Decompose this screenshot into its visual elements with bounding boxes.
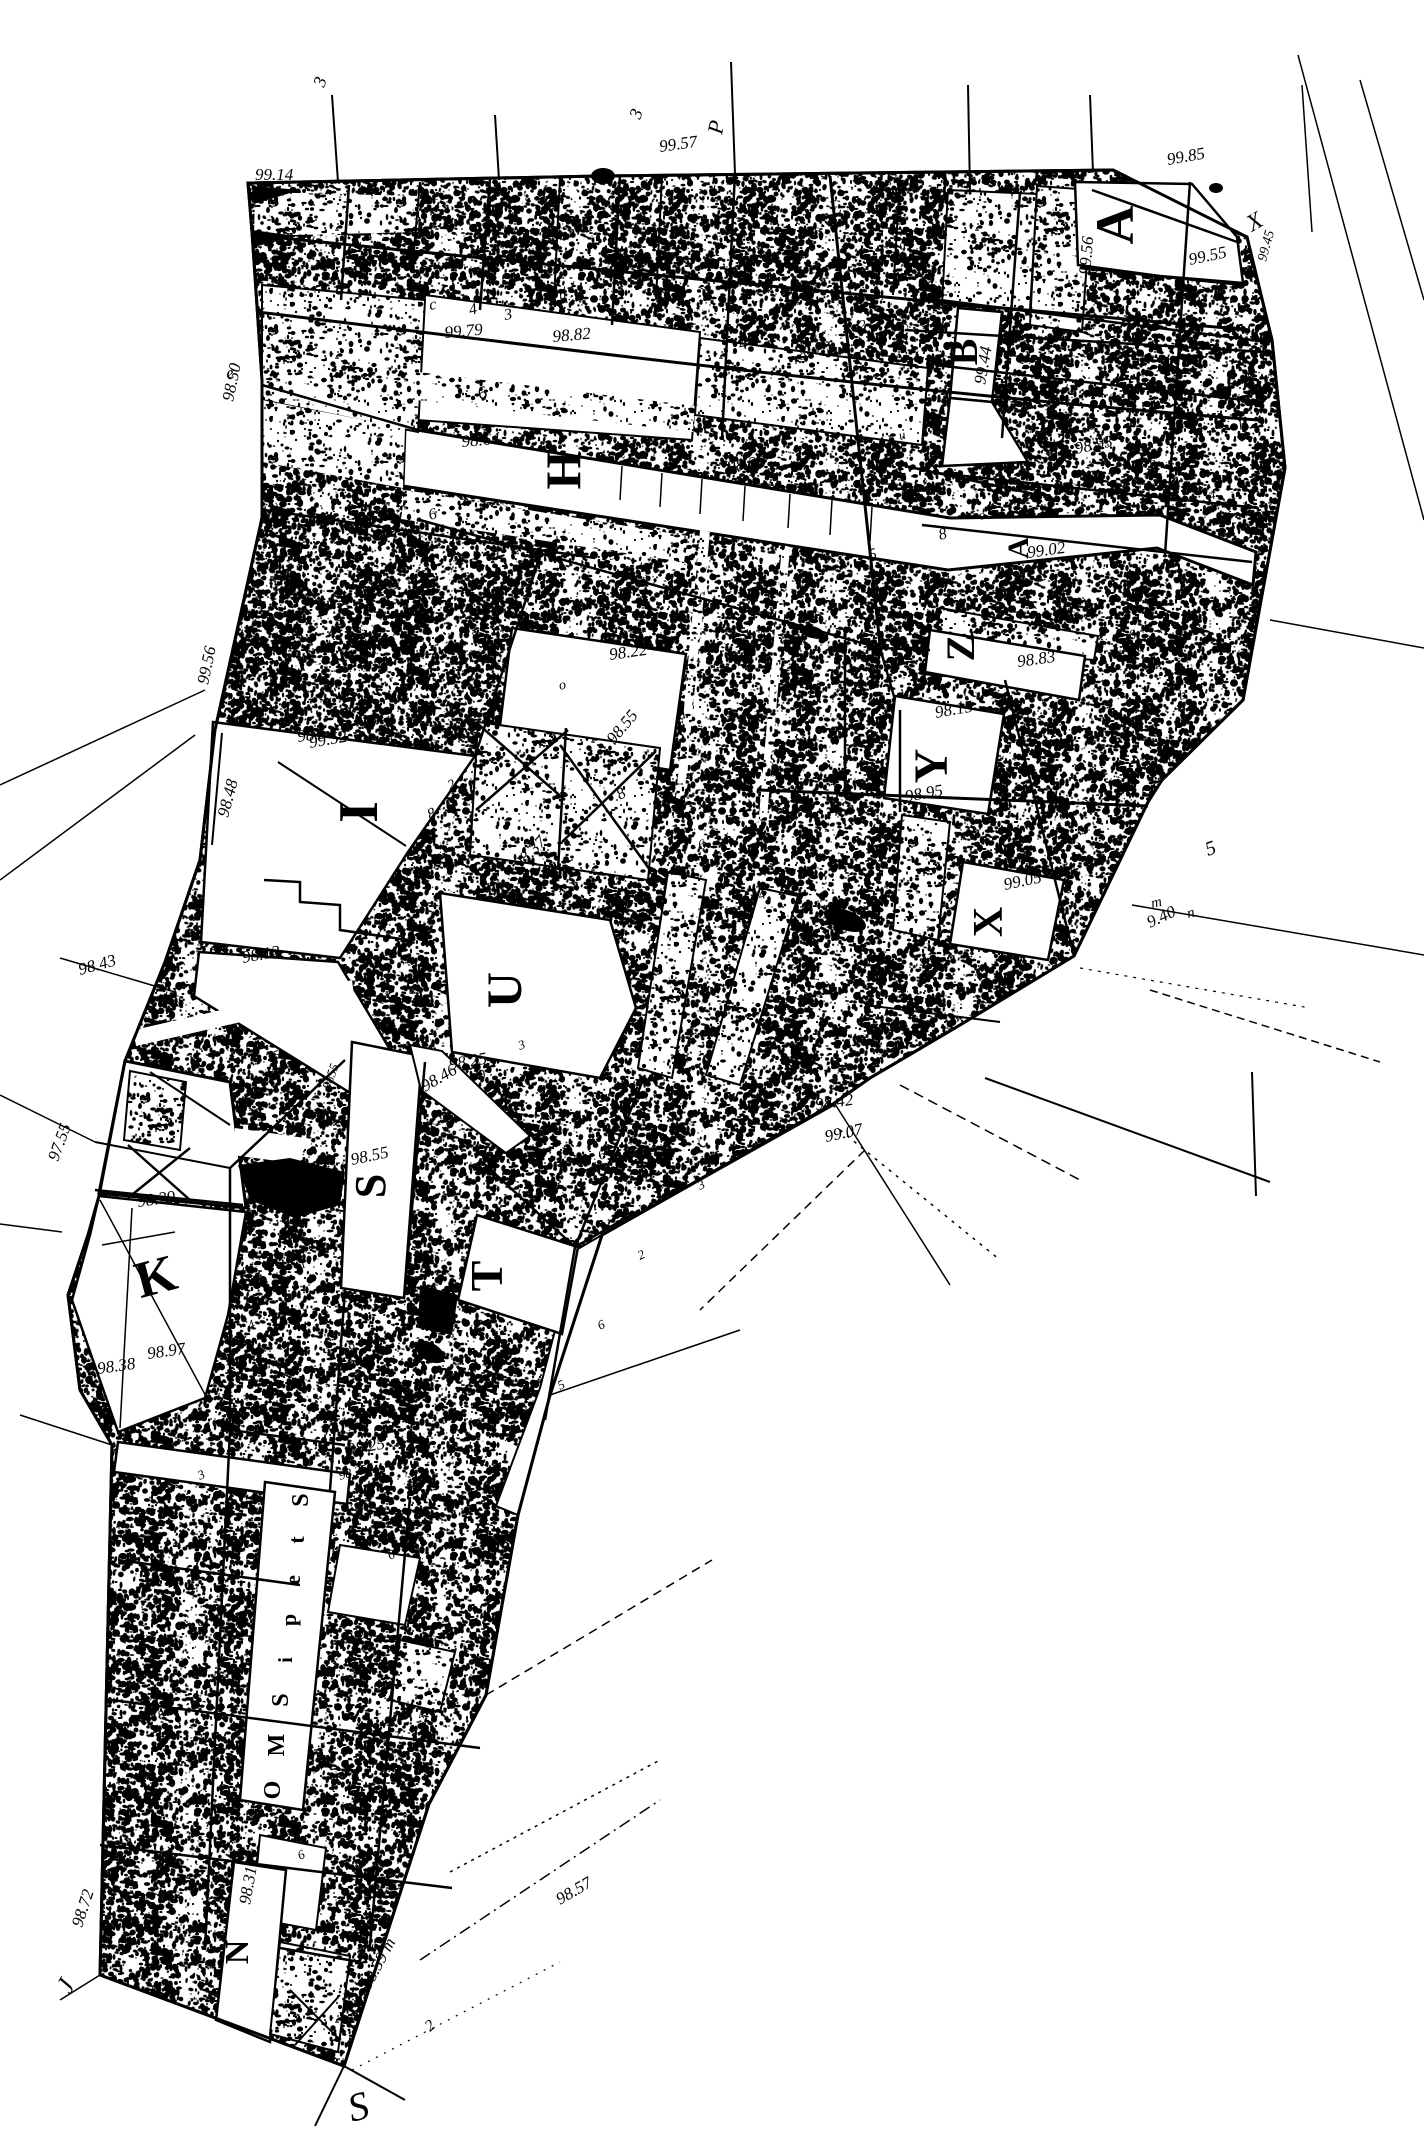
svg-text:Z: Z bbox=[938, 635, 983, 662]
svg-text:i: i bbox=[275, 1657, 297, 1663]
svg-text:98.64: 98.64 bbox=[461, 429, 501, 451]
svg-text:H: H bbox=[535, 450, 591, 489]
svg-text:X: X bbox=[966, 907, 1012, 937]
svg-text:S: S bbox=[346, 1174, 395, 1198]
svg-text:S: S bbox=[288, 1493, 314, 1506]
svg-text:M: M bbox=[264, 1734, 290, 1757]
svg-text:e: e bbox=[280, 1575, 305, 1585]
svg-text:N: N bbox=[219, 1939, 256, 1964]
svg-text:S: S bbox=[268, 1693, 294, 1706]
svg-text:99.79: 99.79 bbox=[444, 320, 484, 342]
svg-text:I: I bbox=[328, 801, 390, 823]
svg-text:O: O bbox=[260, 1781, 286, 1800]
svg-text:p: p bbox=[276, 1614, 301, 1626]
svg-text:98.82: 98.82 bbox=[552, 324, 592, 346]
svg-text:98.94: 98.94 bbox=[891, 312, 913, 352]
svg-text:Y: Y bbox=[905, 749, 958, 784]
svg-text:T: T bbox=[461, 1261, 512, 1292]
svg-text:99.56: 99.56 bbox=[1075, 235, 1097, 275]
svg-text:t: t bbox=[284, 1536, 309, 1544]
svg-text:U: U bbox=[476, 972, 532, 1008]
svg-text:99.14: 99.14 bbox=[255, 165, 294, 184]
